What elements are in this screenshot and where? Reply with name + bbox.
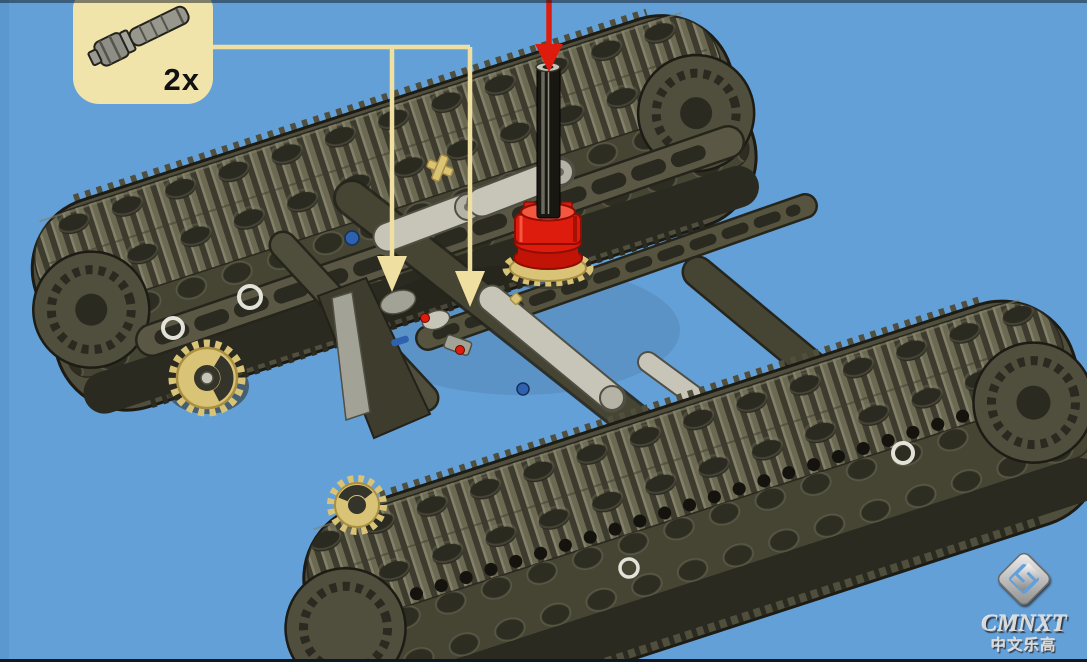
page-edge-left: [0, 0, 9, 662]
diamond-s-logo-icon: [991, 550, 1057, 610]
quantity-label: 2x: [164, 62, 200, 98]
page-edge-top: [0, 0, 1087, 3]
blue-pin: [517, 383, 529, 395]
watermark-subtitle-text: 中文乐高: [991, 638, 1057, 655]
drive-axle-black: [536, 63, 560, 219]
red-pin: [421, 314, 430, 323]
parts-callout-box: 2x: [73, 0, 213, 104]
page-edge-bottom: [0, 659, 1087, 662]
blue-pin: [345, 231, 359, 245]
watermark-brand-text: CMNXT: [981, 612, 1066, 636]
red-pin: [456, 346, 465, 355]
watermark: CMNXT 中文乐高: [964, 550, 1084, 655]
